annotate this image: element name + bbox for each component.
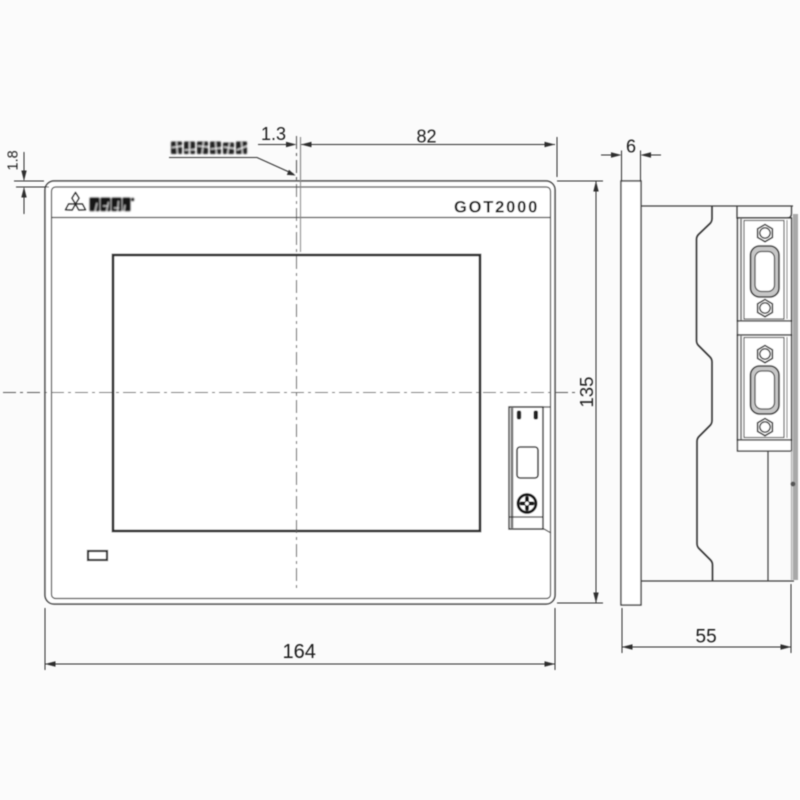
svg-text:55: 55	[696, 627, 717, 648]
svg-text:1.8: 1.8	[6, 150, 22, 170]
svg-text:164: 164	[283, 641, 316, 663]
svg-text:GOT2000: GOT2000	[454, 199, 539, 217]
svg-text:82: 82	[417, 127, 437, 147]
svg-text:6: 6	[626, 137, 636, 157]
svg-text:1.3: 1.3	[261, 124, 286, 144]
svg-text:135: 135	[576, 377, 597, 408]
